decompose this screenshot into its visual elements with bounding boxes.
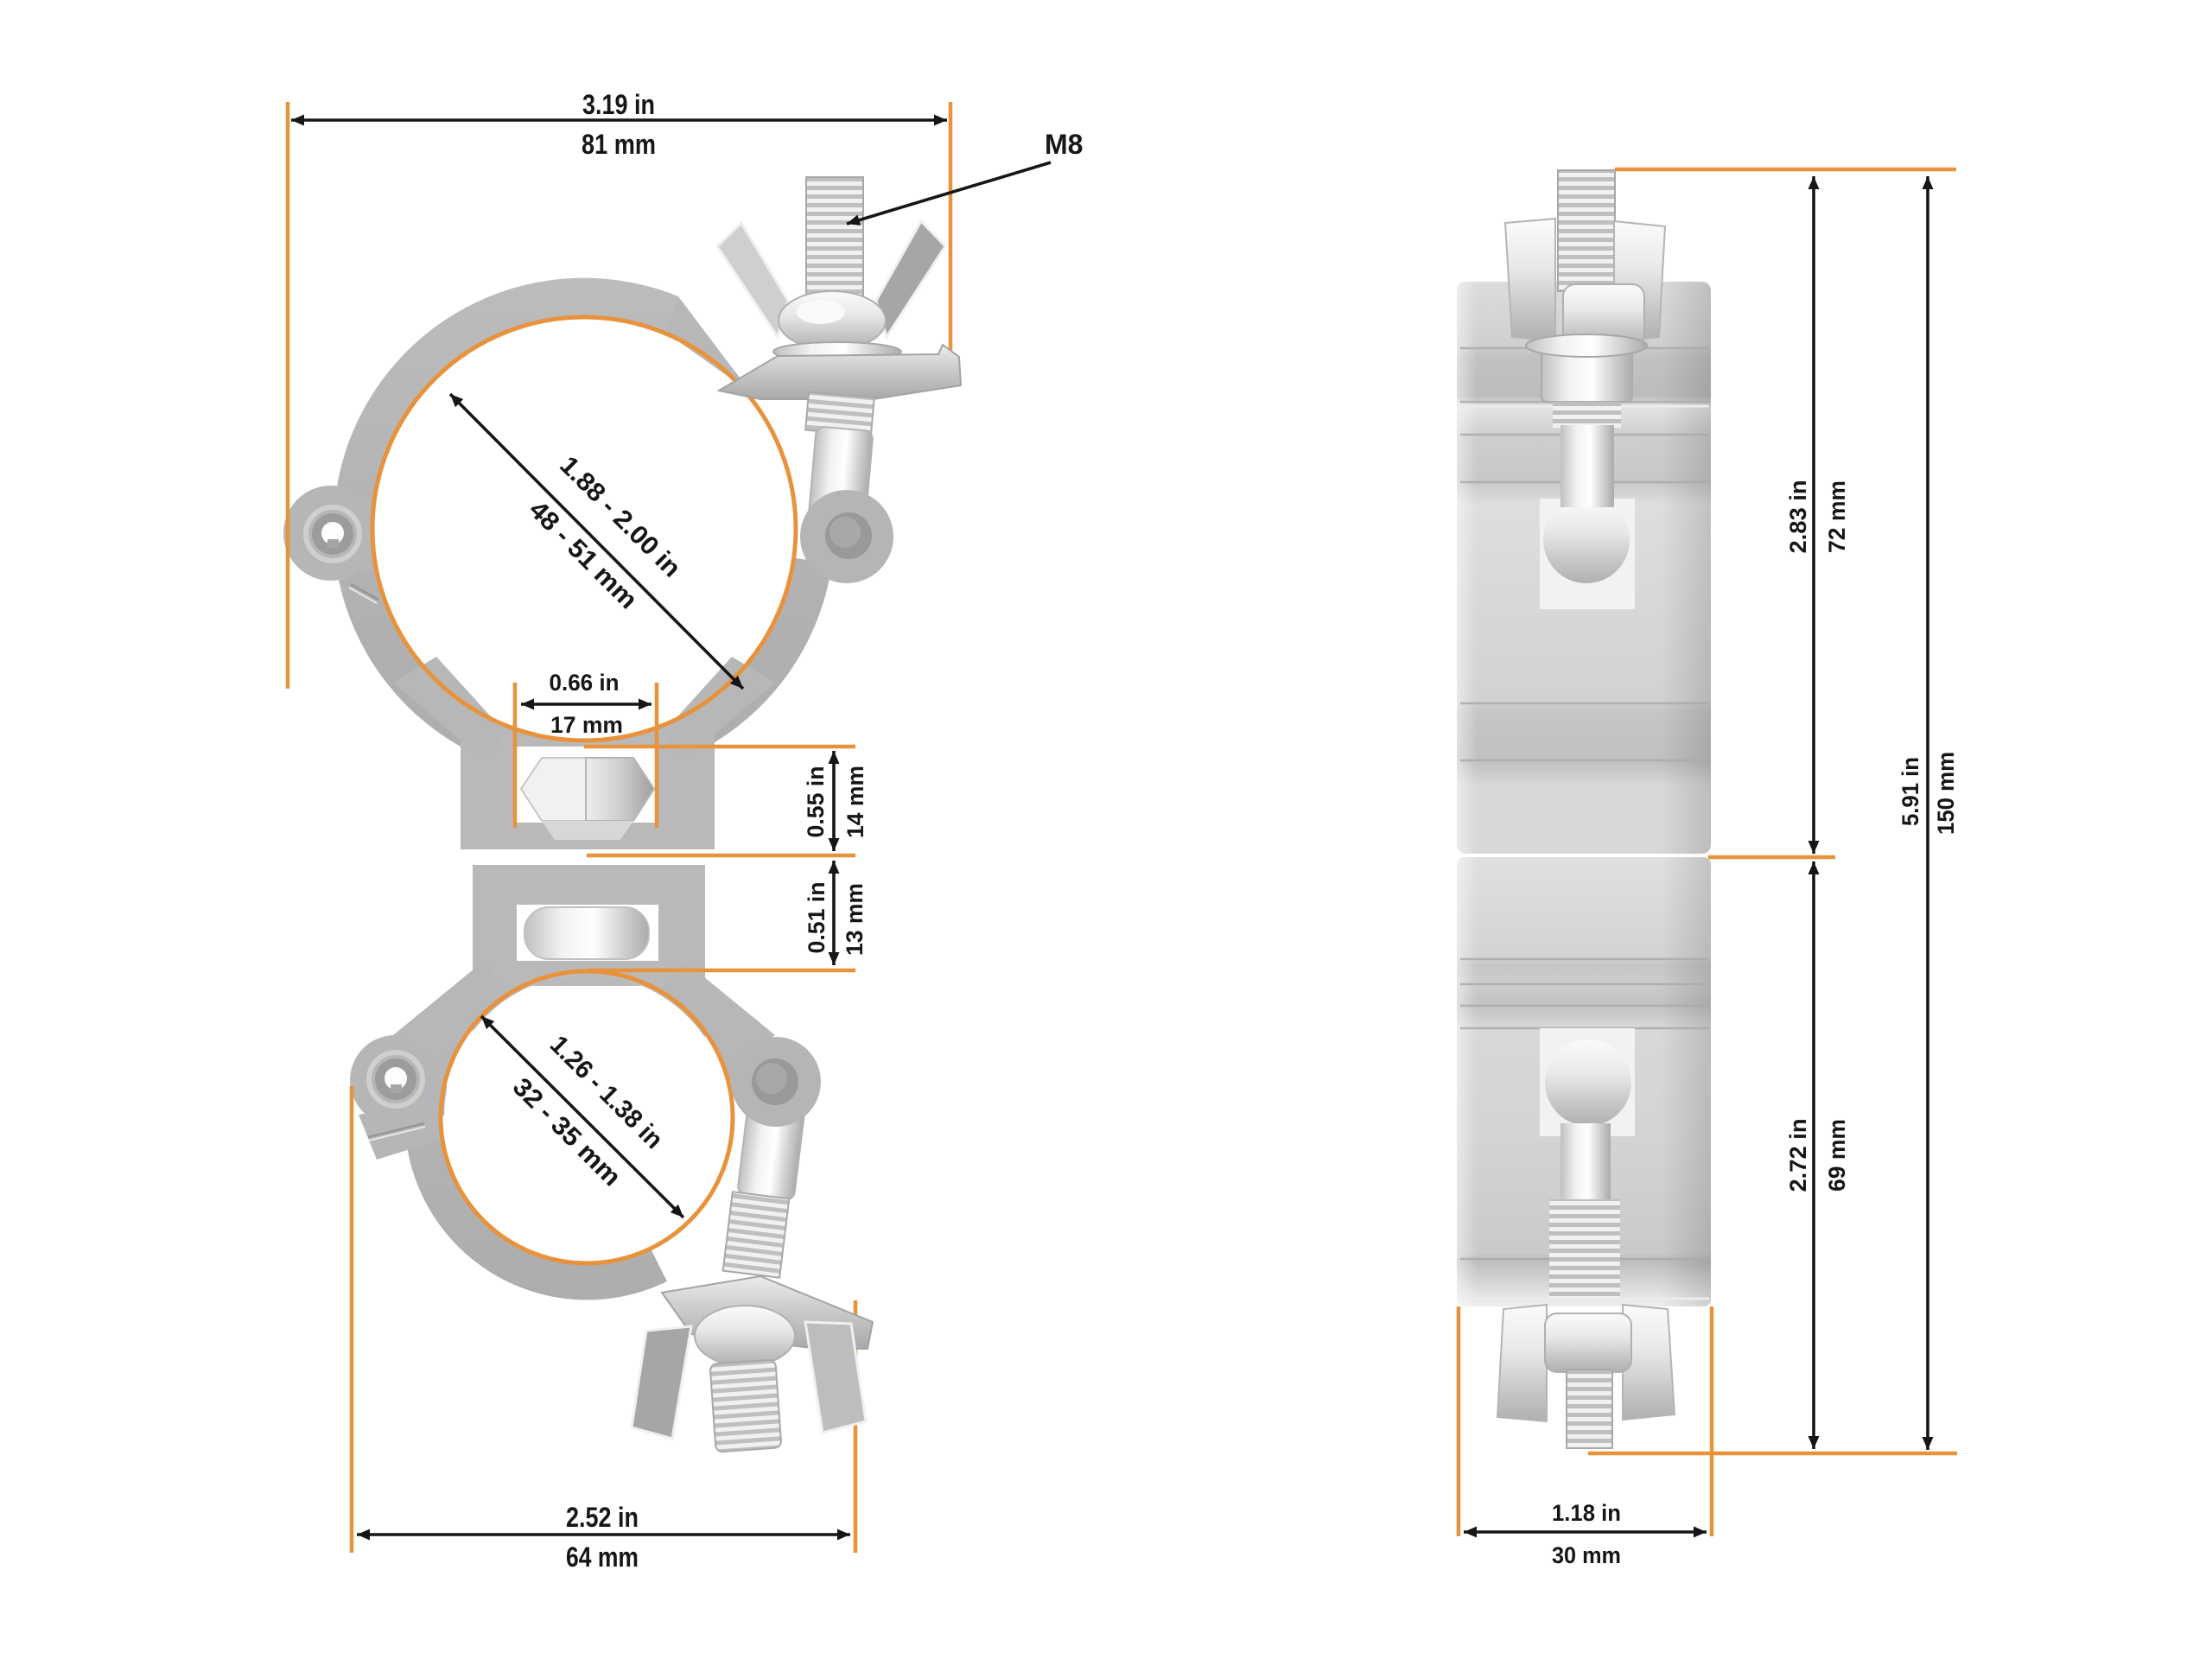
svg-text:64 mm: 64 mm	[566, 1541, 639, 1573]
svg-text:13 mm: 13 mm	[842, 883, 868, 956]
svg-text:3.19 in: 3.19 in	[582, 89, 655, 120]
svg-text:0.55 in: 0.55 in	[803, 766, 829, 838]
svg-text:0.51 in: 0.51 in	[804, 882, 829, 954]
svg-text:0.66 in: 0.66 in	[550, 670, 620, 696]
svg-text:1.18 in: 1.18 in	[1552, 1500, 1621, 1526]
svg-text:17 mm: 17 mm	[550, 712, 623, 738]
svg-text:M8: M8	[1045, 129, 1083, 160]
svg-text:2.52 in: 2.52 in	[566, 1502, 639, 1533]
svg-text:2.72 in: 2.72 in	[1785, 1119, 1811, 1192]
svg-text:72 mm: 72 mm	[1824, 480, 1850, 553]
svg-text:69 mm: 69 mm	[1824, 1119, 1850, 1192]
svg-text:5.91 in: 5.91 in	[1897, 757, 1923, 826]
svg-text:30 mm: 30 mm	[1552, 1542, 1621, 1568]
svg-text:81 mm: 81 mm	[582, 129, 656, 160]
svg-text:14 mm: 14 mm	[842, 766, 868, 838]
svg-text:150 mm: 150 mm	[1933, 752, 1959, 835]
svg-text:2.83 in: 2.83 in	[1785, 480, 1811, 554]
